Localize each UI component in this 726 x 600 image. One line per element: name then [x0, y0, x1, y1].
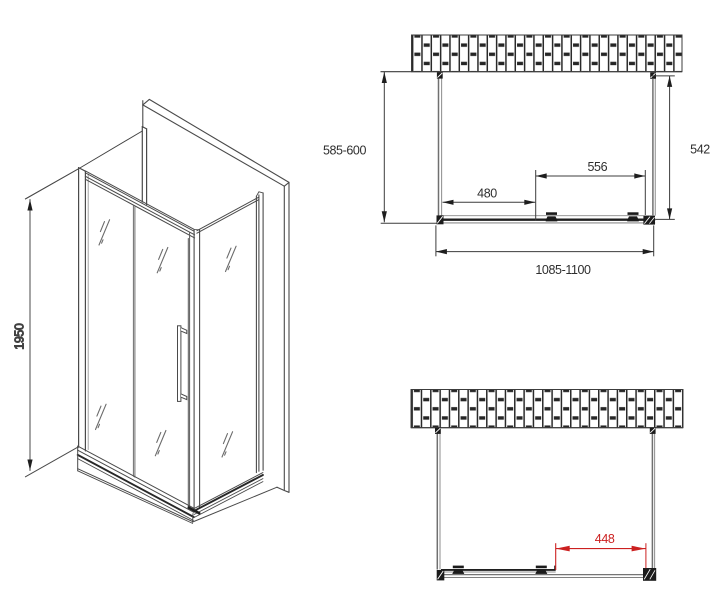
svg-text:542: 542 [690, 142, 710, 156]
svg-text:556: 556 [587, 160, 607, 174]
svg-text:448: 448 [595, 532, 615, 546]
svg-text:585-600: 585-600 [323, 143, 367, 157]
svg-text:480: 480 [477, 187, 497, 201]
svg-text:1950: 1950 [12, 323, 26, 350]
svg-text:1085-1100: 1085-1100 [535, 263, 591, 277]
